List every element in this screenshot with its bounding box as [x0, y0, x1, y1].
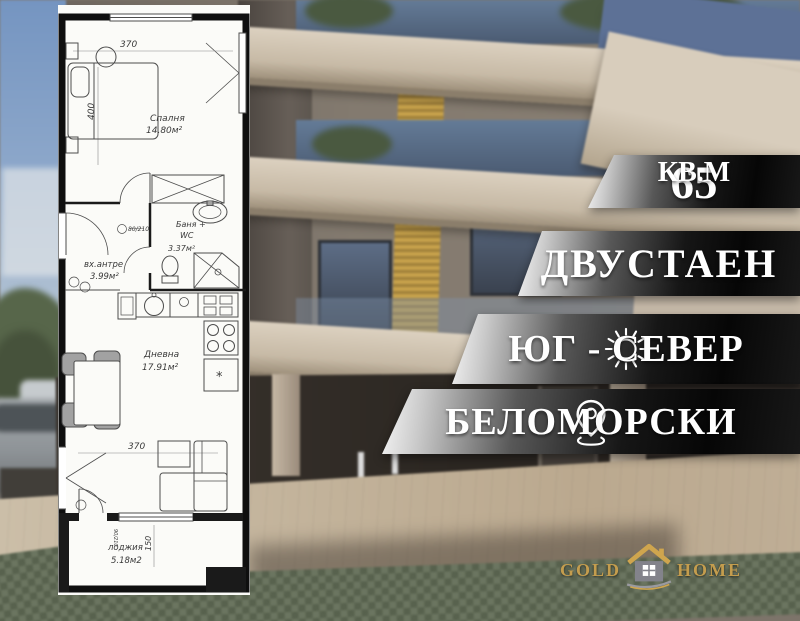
bath-label-2: WC [180, 231, 194, 240]
dim-top-width: 370 [120, 40, 137, 50]
living-area: 17.91м² [142, 363, 179, 373]
dim-bedroom-depth: 400 [87, 103, 97, 120]
banner-orientation: ЮГ - СЕВЕР [452, 314, 800, 384]
floor-plan: 370 400 Спалня 14.80м² 80/210 Баня + WC … [58, 5, 250, 595]
logo-word-home: HOME [677, 560, 742, 581]
banner-area: 65 КВ.М [588, 155, 800, 208]
entry-label: вх.антре [84, 260, 123, 270]
bollard [358, 452, 364, 478]
area-unit: КВ.М [658, 157, 730, 189]
house-icon [624, 535, 674, 595]
orientation-label: ЮГ - СЕВЕР [508, 327, 743, 371]
loggia-area: 5.18м2 [111, 556, 142, 566]
balcony-plants [312, 126, 392, 162]
bath-label-1: Баня + [176, 220, 206, 229]
bedroom-label: Спалня [150, 114, 185, 124]
bath-area: 3.37м² [168, 244, 196, 253]
banner-location: БЕЛОМОРСКИ [382, 389, 800, 454]
loggia-label: лоджия [107, 543, 143, 553]
dim-living-width: 370 [128, 442, 145, 452]
living-label: Дневна [143, 350, 179, 360]
pillar [272, 374, 300, 476]
bedroom-area: 14.80м² [146, 126, 183, 136]
plan-paper [58, 5, 250, 595]
distant-building [2, 168, 62, 276]
dim-loggia-depth: 150 [144, 536, 153, 551]
bath-door-size: 80/210 [128, 226, 149, 233]
promo-image: 370 400 Спалня 14.80м² 80/210 Баня + WC … [0, 0, 800, 621]
apartment-type-label: ДВУСТАЕН [541, 240, 778, 287]
logo-word-gold: GOLD [560, 560, 621, 581]
fridge-mark: * [216, 370, 223, 385]
banner-apartment-type: ДВУСТАЕН [518, 231, 800, 296]
agency-logo: GOLD HOME [560, 537, 750, 603]
entry-area: 3.99м² [90, 272, 119, 282]
location-label: БЕЛОМОРСКИ [445, 400, 737, 444]
